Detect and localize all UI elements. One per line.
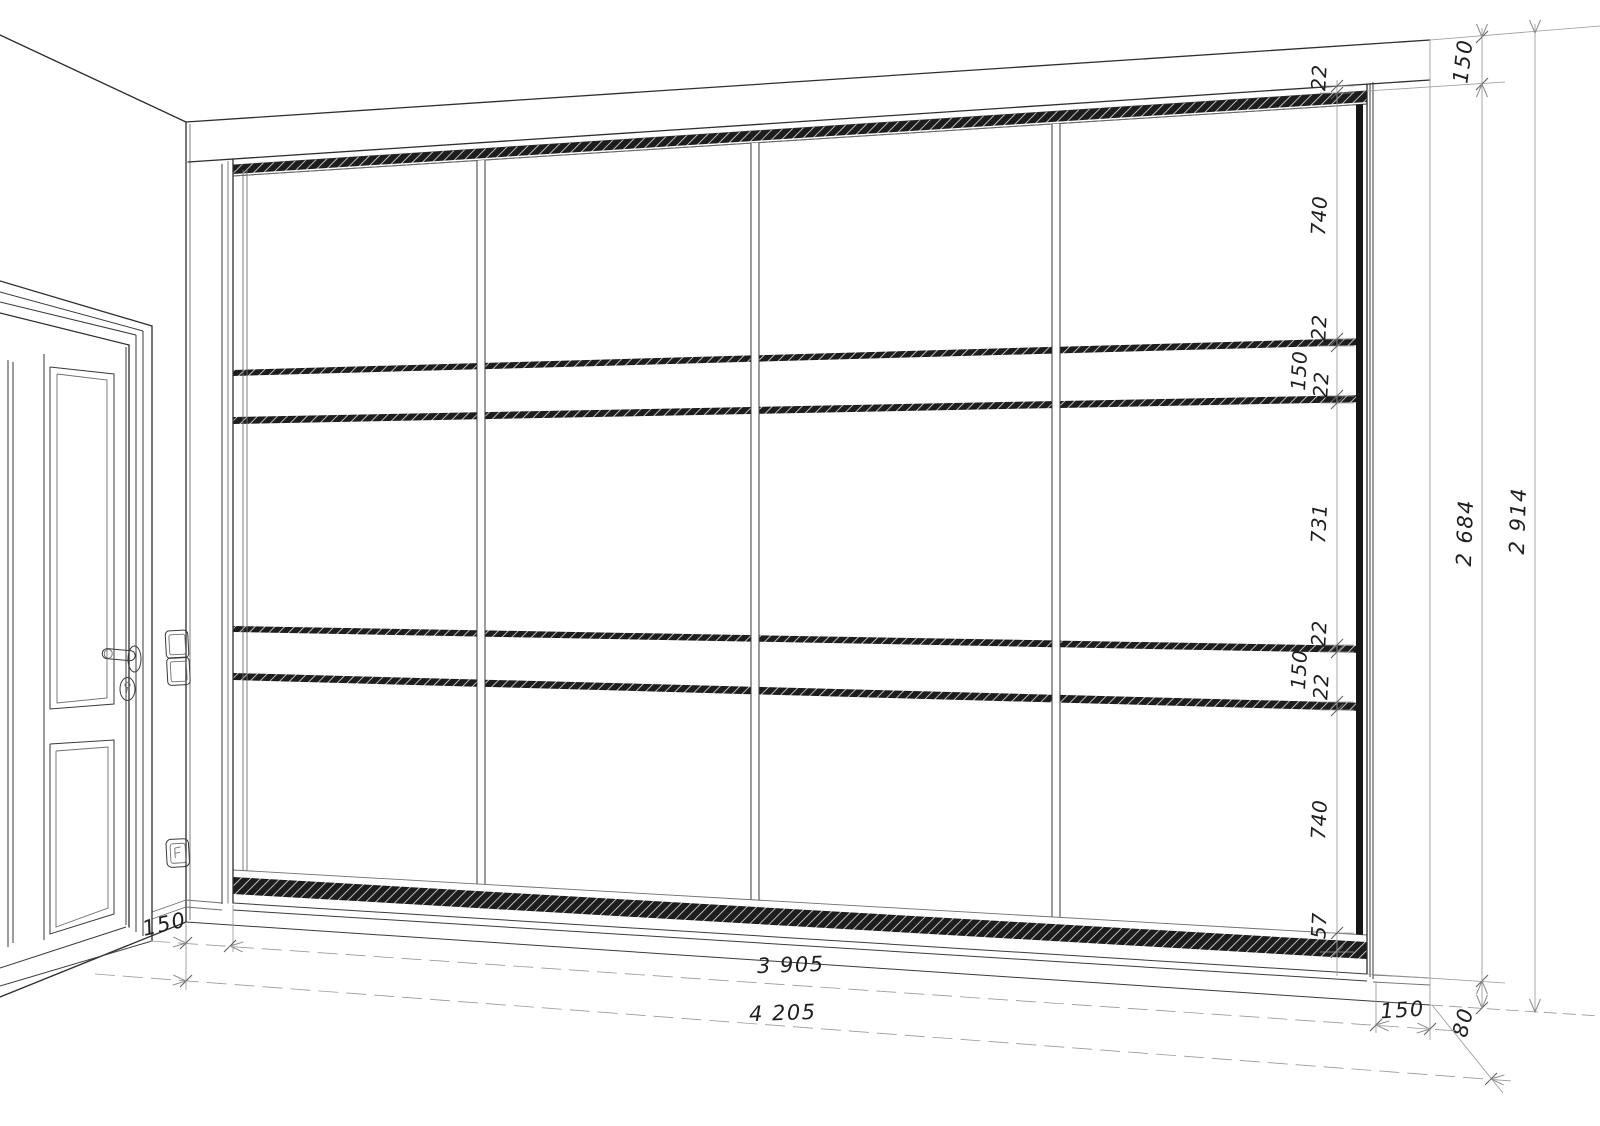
- dim-label-plinth-80: 80: [1448, 1005, 1478, 1040]
- dim-label-57: 57: [1306, 912, 1331, 940]
- door-threshold: [0, 941, 152, 986]
- dim-line-4205: [95, 974, 1512, 1081]
- dimension-right-overall: 150 2 684 2 914 80: [1367, 20, 1541, 1040]
- dim-label-740-lower: 740: [1306, 799, 1332, 840]
- baseboard-left-gap-top: [186, 900, 222, 903]
- dim-label-22-a: 22: [1306, 314, 1331, 342]
- door-handle-icon: [102, 646, 141, 672]
- dim-label-22-c: 22: [1306, 620, 1331, 648]
- dim-label-3905: 3 905: [757, 952, 825, 978]
- dim-label-2914: 2 914: [1505, 487, 1531, 555]
- wardrobe-perspective-drawing: 22 740 22 150 22 731 22 150 22 740 57 15…: [0, 0, 1600, 1126]
- dim-label-22-b: 22: [1308, 371, 1333, 399]
- dim-label-ceiling-gap-150: 150: [1448, 38, 1477, 85]
- dim-label-150-b: 150: [1286, 649, 1312, 690]
- dim-label-left-gap-150: 150: [140, 907, 189, 940]
- door-leaf-bottom: [0, 927, 126, 968]
- dim-label-4205: 4 205: [749, 1000, 817, 1026]
- built-in-wardrobe: [188, 80, 1430, 981]
- dim-label-731: 731: [1306, 503, 1332, 544]
- door-keyhole-icon: [120, 678, 135, 701]
- baseboard-left-gap-bottom: [186, 907, 222, 910]
- dim-label-22-d: 22: [1308, 673, 1333, 701]
- door-architrave-mid-top: [0, 292, 143, 331]
- wardrobe-mullion-1: [477, 160, 485, 884]
- wardrobe-face: [233, 84, 1367, 974]
- ceiling-left-wall-line: [0, 35, 186, 122]
- wardrobe-mullion-2: [751, 143, 759, 901]
- dim-label-740-upper: 740: [1306, 195, 1332, 236]
- baseboard-right-gap-bottom: [1373, 982, 1430, 985]
- wardrobe-mullion-3: [1052, 124, 1060, 918]
- dim-label-right-gap-150: 150: [1379, 996, 1425, 1023]
- entry-door: [0, 281, 152, 986]
- door-lower-panel: [50, 740, 114, 934]
- dim-label-2684: 2 684: [1452, 499, 1478, 567]
- technical-drawing-page: 22 740 22 150 22 731 22 150 22 740 57 15…: [0, 0, 1600, 1126]
- dim-label-top-22: 22: [1306, 64, 1331, 92]
